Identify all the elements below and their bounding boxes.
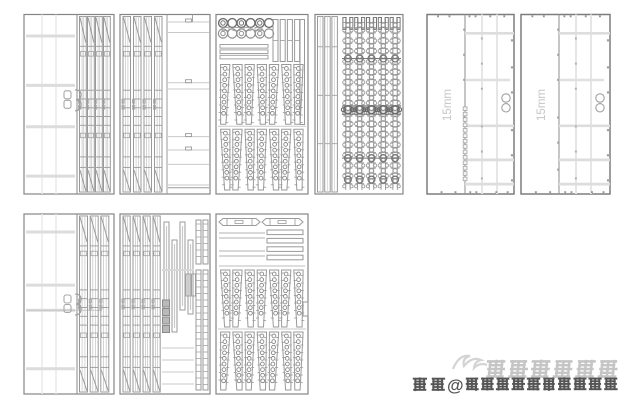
svg-text:15mm: 15mm (442, 89, 454, 121)
svg-text:@: @ (447, 376, 464, 395)
svg-text:15mm: 15mm (536, 89, 548, 121)
